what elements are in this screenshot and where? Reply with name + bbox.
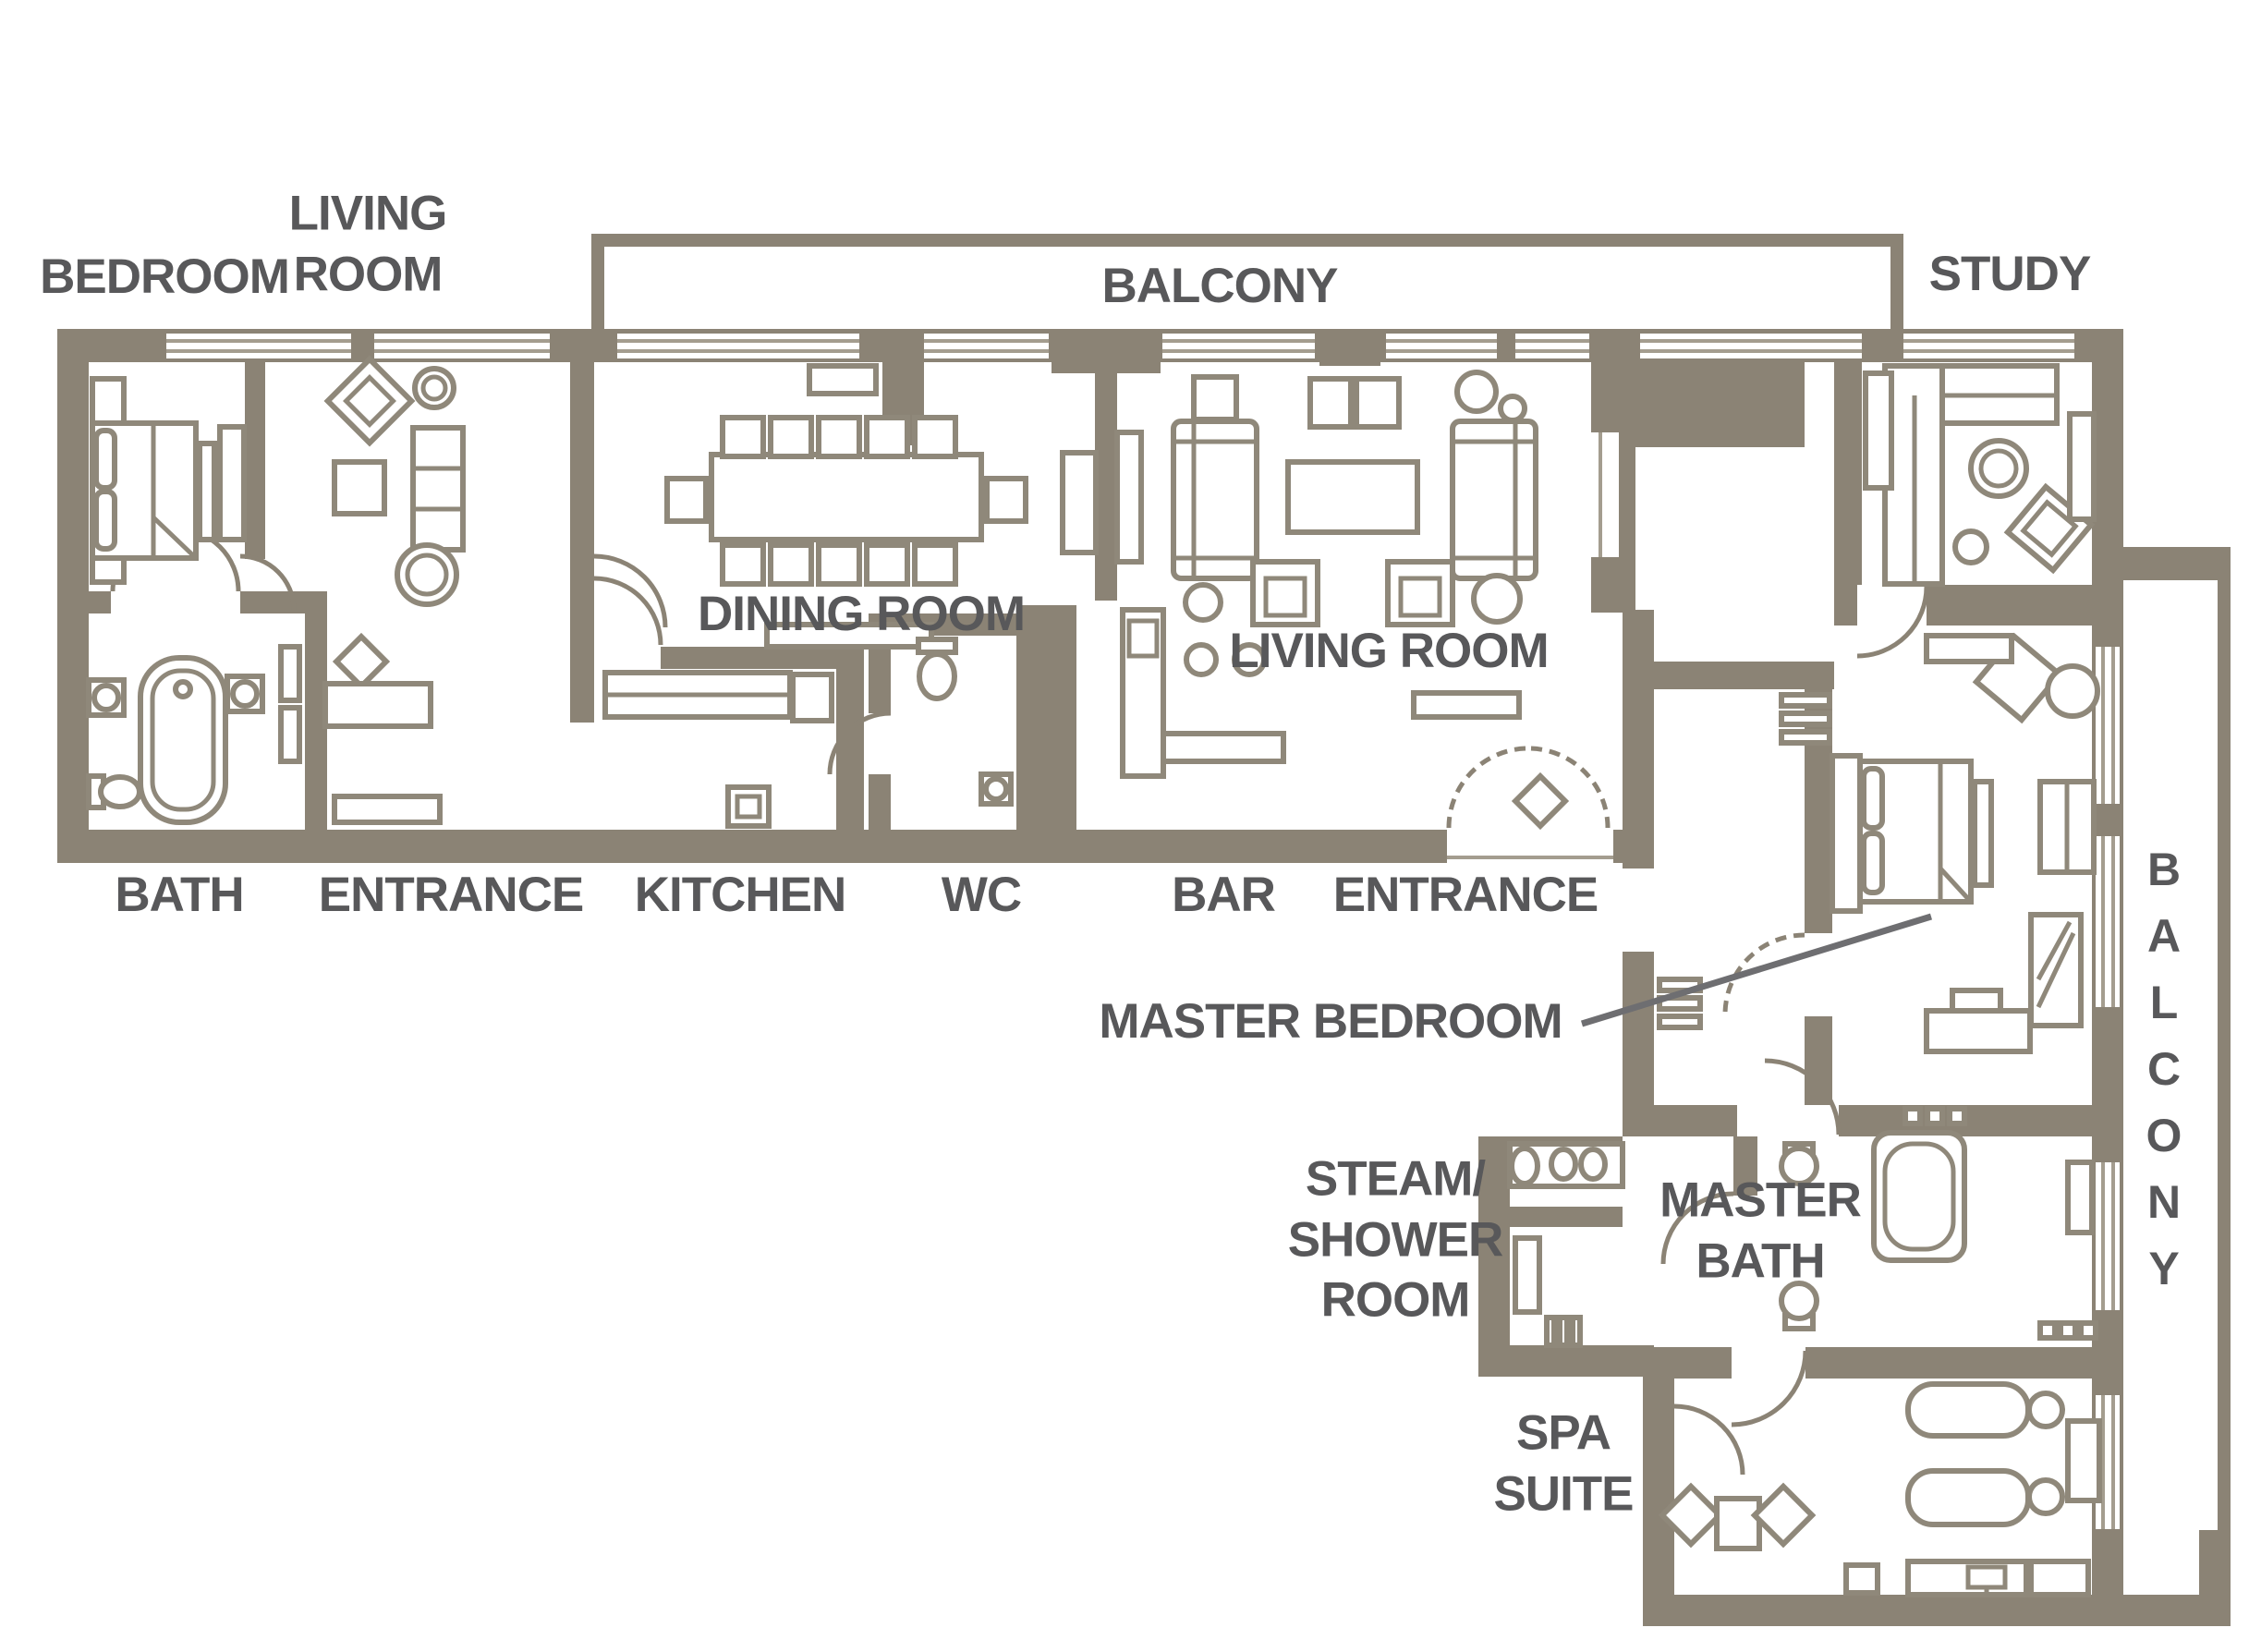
label-balcony-right: BALCONY bbox=[2137, 844, 2191, 1309]
media-console bbox=[1310, 379, 1351, 427]
furniture-bedroom bbox=[92, 379, 244, 582]
desk bbox=[1866, 373, 1891, 488]
side-table bbox=[1194, 377, 1236, 419]
cabinet bbox=[1117, 432, 1141, 562]
pillow bbox=[1864, 769, 1882, 828]
desk-chair bbox=[336, 637, 386, 686]
cabinet bbox=[2070, 414, 2094, 519]
massage-bed bbox=[1908, 1384, 2028, 1436]
furniture-kitchen bbox=[605, 673, 832, 826]
label-living-room-center: LIVING ROOM bbox=[1229, 621, 1548, 682]
label-spa-line1: SPA bbox=[1493, 1403, 1633, 1464]
stove bbox=[728, 787, 769, 826]
shelf bbox=[281, 647, 299, 700]
toilet bbox=[919, 654, 954, 698]
chair bbox=[1515, 776, 1565, 826]
shower-control bbox=[1547, 1318, 1554, 1345]
shower-control bbox=[1573, 1318, 1580, 1345]
label-wc: WC bbox=[942, 865, 1021, 926]
nightstand bbox=[92, 379, 124, 423]
closet-shelf bbox=[1781, 695, 1830, 706]
accessory bbox=[2040, 1323, 2055, 1338]
label-balcony-top: BALCONY bbox=[1101, 256, 1337, 317]
accessory bbox=[1950, 1109, 1964, 1124]
bench bbox=[1975, 782, 1991, 885]
floor-plan: BEDROOM LIVING ROOM BALCONY STUDY DINING… bbox=[0, 0, 2249, 1652]
furniture-living-center bbox=[1173, 346, 1536, 625]
chair bbox=[667, 479, 706, 521]
pillow bbox=[96, 431, 115, 488]
label-spa-suite: SPA SUITE bbox=[1493, 1403, 1633, 1524]
chair bbox=[723, 545, 763, 584]
dining-table bbox=[711, 455, 981, 540]
furniture-entrance-left bbox=[325, 637, 440, 822]
chair bbox=[915, 545, 955, 584]
label-bar: BAR bbox=[1172, 865, 1275, 926]
study-door bbox=[1857, 587, 1927, 656]
sideboard bbox=[809, 366, 876, 394]
pillow bbox=[96, 492, 115, 549]
side-table bbox=[1501, 396, 1525, 420]
accessory bbox=[1905, 1109, 1920, 1124]
side-table bbox=[334, 462, 384, 514]
bar-counter bbox=[1163, 734, 1283, 761]
furniture-steam-shower bbox=[1510, 1144, 1623, 1345]
label-steam-line1: STEAM/ bbox=[1288, 1148, 1503, 1209]
towel-shelf bbox=[2068, 1162, 2092, 1233]
spa-door bbox=[1732, 1351, 1805, 1425]
chair bbox=[867, 545, 907, 584]
label-steam-shower-room: STEAM/ SHOWER ROOM bbox=[1288, 1148, 1503, 1330]
headboard-cabinet bbox=[1832, 756, 1860, 911]
fridge bbox=[793, 674, 832, 721]
console bbox=[1414, 693, 1519, 717]
closet-shelf bbox=[1659, 1016, 1700, 1027]
accessory bbox=[2081, 1323, 2096, 1338]
label-living-room-left-line1: LIVING bbox=[289, 183, 447, 244]
sink bbox=[233, 682, 257, 706]
divider-wall bbox=[1510, 1207, 1623, 1227]
label-living-room-left-line2: ROOM bbox=[289, 244, 447, 305]
closet-shelf bbox=[1781, 713, 1830, 724]
table bbox=[1717, 1499, 1759, 1549]
label-kitchen: KITCHEN bbox=[635, 865, 846, 926]
chair bbox=[987, 479, 1026, 521]
label-steam-line3: ROOM bbox=[1288, 1270, 1503, 1331]
chair bbox=[819, 418, 859, 456]
media-console bbox=[1356, 379, 1399, 427]
accessory bbox=[2061, 1323, 2075, 1338]
accessory bbox=[1927, 1109, 1942, 1124]
sink bbox=[986, 779, 1006, 799]
closet-shelf bbox=[1781, 732, 1830, 743]
faucet bbox=[176, 682, 190, 697]
kitchen-door bbox=[594, 578, 661, 645]
spa-entry-door bbox=[1674, 1406, 1743, 1475]
toilet bbox=[1512, 1148, 1538, 1184]
stool bbox=[2029, 1480, 2062, 1513]
label-master-bath-line2: BATH bbox=[1659, 1231, 1861, 1292]
furniture-wc bbox=[918, 639, 1011, 804]
label-master-bath: MASTER BATH bbox=[1659, 1170, 1861, 1291]
chair bbox=[771, 418, 811, 456]
cabinet bbox=[1063, 453, 1096, 553]
chair bbox=[1755, 1487, 1812, 1544]
chair bbox=[819, 545, 859, 584]
furniture-living-left bbox=[328, 359, 463, 604]
coffee-table bbox=[1288, 462, 1417, 532]
sink bbox=[94, 686, 118, 710]
desk-chair bbox=[1952, 990, 2000, 1011]
label-entrance-right: ENTRANCE bbox=[1333, 865, 1598, 926]
pillow bbox=[1864, 833, 1882, 893]
furniture-bath bbox=[89, 647, 299, 822]
side-table bbox=[1457, 372, 1496, 411]
cabinet bbox=[2031, 1561, 2088, 1595]
chair bbox=[723, 418, 763, 456]
console bbox=[2068, 1421, 2099, 1500]
label-dining-room: DINING ROOM bbox=[698, 584, 1025, 645]
toilet bbox=[101, 777, 140, 807]
shower-bench bbox=[1515, 1238, 1539, 1312]
label-master-bath-line1: MASTER bbox=[1659, 1170, 1861, 1231]
armchair bbox=[328, 359, 412, 443]
bar-stool bbox=[1186, 645, 1216, 674]
bench bbox=[200, 443, 214, 540]
desk bbox=[325, 684, 431, 726]
sofa bbox=[1453, 421, 1536, 578]
chair bbox=[915, 418, 955, 456]
label-bath: BATH bbox=[115, 865, 243, 926]
furniture-corridor bbox=[1659, 695, 1830, 1027]
console bbox=[1927, 636, 2012, 662]
bathtub bbox=[1874, 1133, 1964, 1260]
label-spa-line2: SUITE bbox=[1493, 1464, 1633, 1524]
stool bbox=[1955, 531, 1987, 563]
label-bedroom: BEDROOM bbox=[40, 247, 289, 308]
chair bbox=[867, 418, 907, 456]
round-table bbox=[2048, 666, 2097, 716]
massage-bed bbox=[1908, 1471, 2028, 1524]
sink bbox=[1551, 1149, 1575, 1179]
label-entrance-left: ENTRANCE bbox=[319, 865, 583, 926]
sink bbox=[1581, 1149, 1605, 1179]
furniture-master-bedroom bbox=[1832, 636, 2097, 1051]
furniture-spa bbox=[1662, 1384, 2099, 1595]
side-table bbox=[415, 369, 454, 407]
label-living-room-left: LIVING ROOM bbox=[289, 183, 447, 304]
tv bbox=[1319, 346, 1380, 366]
tv-cabinet bbox=[220, 427, 244, 540]
label-study: STUDY bbox=[1929, 244, 2091, 305]
furniture-study bbox=[1866, 366, 2094, 584]
stool bbox=[2029, 1393, 2062, 1427]
side-table bbox=[1474, 576, 1520, 622]
shower-control bbox=[1560, 1318, 1567, 1345]
side-table bbox=[1185, 585, 1221, 620]
cabinet bbox=[1846, 1565, 1878, 1593]
shelf bbox=[281, 708, 299, 761]
entry-door-left bbox=[1449, 748, 1528, 828]
label-steam-line2: SHOWER bbox=[1288, 1209, 1503, 1270]
console bbox=[413, 428, 463, 550]
console bbox=[334, 796, 440, 822]
chair bbox=[771, 545, 811, 584]
sofa bbox=[1173, 421, 1257, 578]
label-master-bedroom: MASTER BEDROOM bbox=[1099, 991, 1562, 1052]
desk bbox=[1927, 1011, 2030, 1051]
